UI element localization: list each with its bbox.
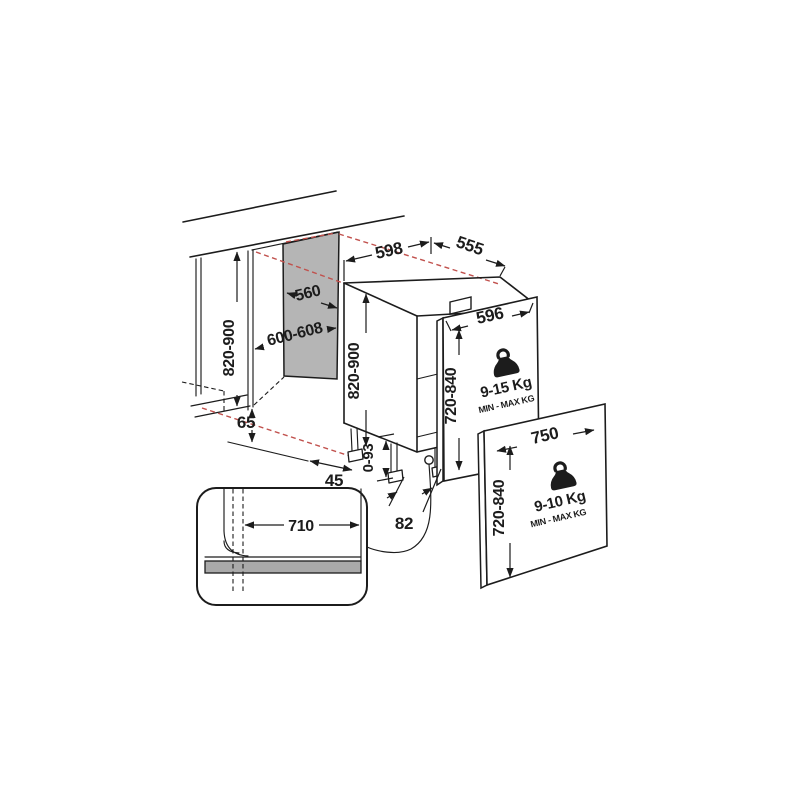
projection-line-floor: [202, 408, 356, 458]
foot-front-offset-arrow-left: [387, 492, 397, 498]
dw-foot-front-left: [388, 470, 403, 483]
dw-width-label: 598: [373, 238, 404, 262]
panel2-height-label: 720-840: [491, 479, 508, 536]
dw-depth-dim-left: [434, 243, 450, 248]
plinth-cutout-label: 710: [288, 518, 314, 535]
countertop-back-edge: [183, 191, 336, 222]
installation-diagram: 820-900 560 600-608 65 598 555: [0, 0, 800, 800]
dw-bottom-edges: [344, 423, 443, 452]
inset-plinth-bar: [205, 561, 361, 573]
dw-depth-label: 555: [454, 232, 486, 259]
niche-width-dim-left: [255, 347, 263, 349]
niche-height-label: 820-900: [221, 319, 238, 376]
dw-top-left-edge: [344, 283, 417, 316]
inset-border: [197, 488, 367, 605]
foot-back-offset-dim: [310, 461, 352, 470]
dw-height-label: 820-900: [346, 342, 363, 399]
dw-width-dim-right: [408, 242, 429, 247]
dw-width-dim-left: [346, 255, 372, 261]
installation-diagram-page: 820-900 560 600-608 65 598 555: [0, 0, 800, 800]
dw-depth-extension: [500, 267, 505, 276]
cabinet-left-frame: [196, 258, 201, 396]
plinth-gap-label: 65: [237, 413, 255, 432]
niche-left-wall: [248, 250, 253, 410]
dw-control-panel-display: [450, 297, 471, 314]
dw-depth-dim-right: [486, 260, 505, 266]
foot-adjust-label: 0-93: [360, 444, 377, 473]
plinth-front-edge: [228, 442, 308, 461]
foot-front-offset-label: 82: [395, 514, 413, 533]
panel1-height-label: 720-840: [443, 367, 460, 424]
hose-hole: [425, 456, 433, 464]
plinth-detail-inset: 710: [197, 488, 367, 605]
dw-top-back-edge: [344, 277, 531, 301]
door-panel-large: 750 720-840 9-10 Kg MIN - MAX KG: [478, 404, 607, 588]
hidden-floor-edges: [182, 377, 284, 412]
